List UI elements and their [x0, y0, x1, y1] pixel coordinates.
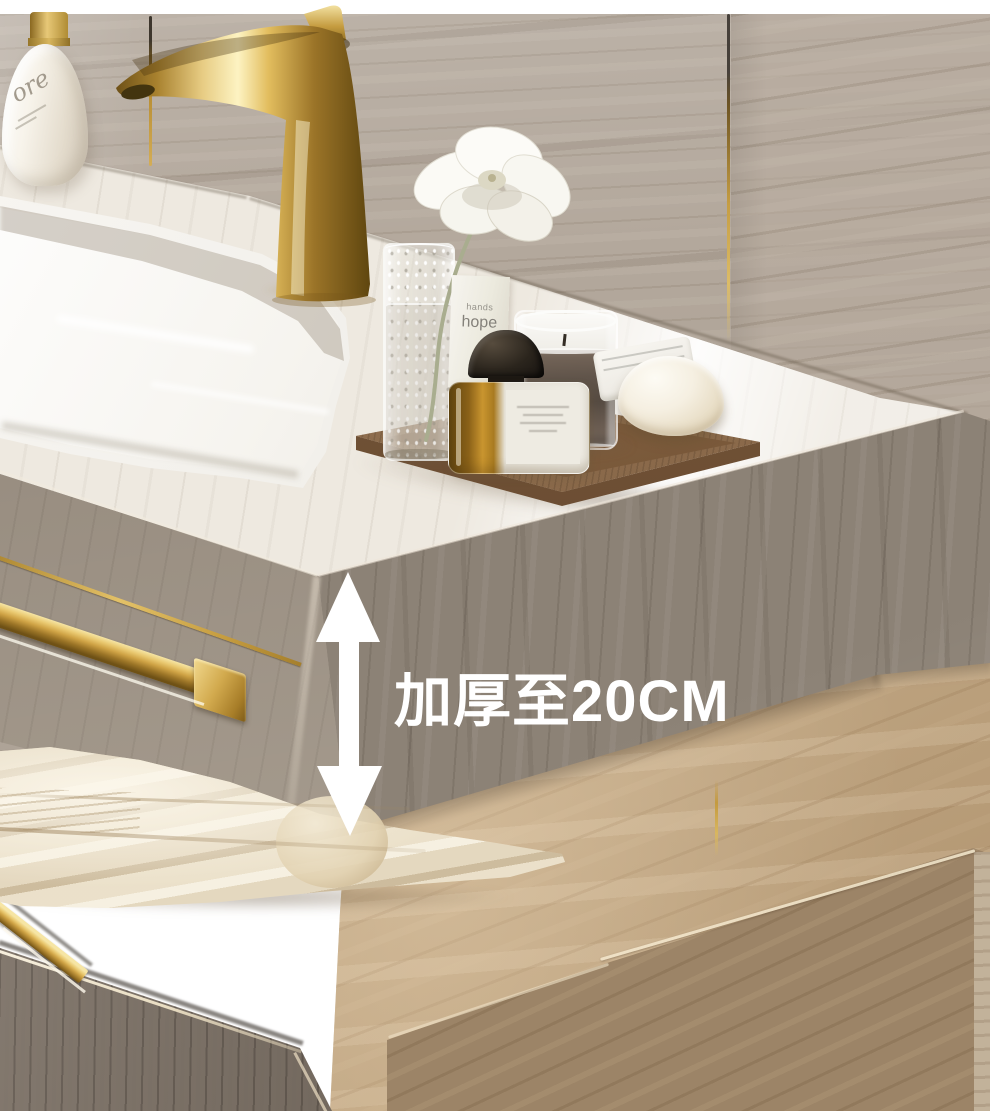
box-text-line1: hands	[451, 301, 509, 313]
product-photo: hands hope	[0, 0, 990, 1111]
candle-rim	[515, 310, 617, 332]
perfume-bottle	[448, 330, 590, 475]
perfume-glass-shine	[456, 388, 461, 466]
gold-wall-trim-lower	[715, 780, 718, 856]
vase-base	[385, 449, 453, 461]
thickness-annotation: 加厚至20CM	[394, 654, 730, 738]
thickness-arrow-icon	[308, 568, 392, 842]
gold-faucet	[80, 0, 390, 320]
perfume-label	[506, 390, 580, 464]
lotion-body	[2, 44, 88, 186]
perfume-cap	[468, 330, 544, 378]
gold-wall-trim-right	[727, 14, 730, 342]
lotion-bottle: ore	[0, 8, 100, 190]
folded-towel	[0, 742, 570, 914]
side-wall-strip	[974, 852, 990, 1111]
